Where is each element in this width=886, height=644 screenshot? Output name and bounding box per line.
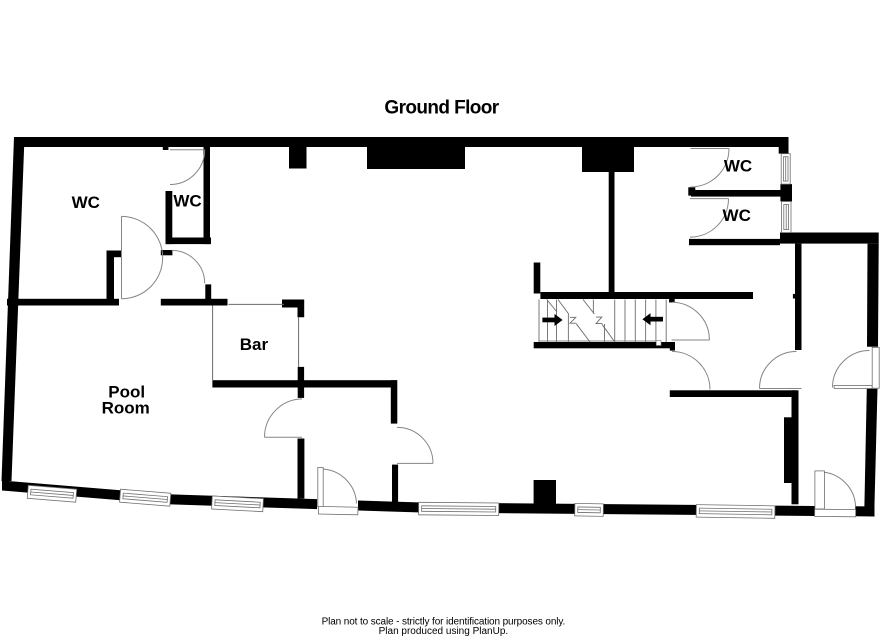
svg-text:WC: WC (723, 206, 751, 225)
svg-text:Plan produced using PlanUp.: Plan produced using PlanUp. (379, 626, 509, 637)
svg-text:Ground Floor: Ground Floor (384, 98, 499, 119)
svg-text:Room: Room (102, 398, 150, 417)
svg-text:Bar: Bar (240, 335, 269, 354)
svg-text:WC: WC (72, 193, 100, 212)
svg-text:WC: WC (724, 157, 752, 176)
svg-text:WC: WC (173, 191, 201, 210)
